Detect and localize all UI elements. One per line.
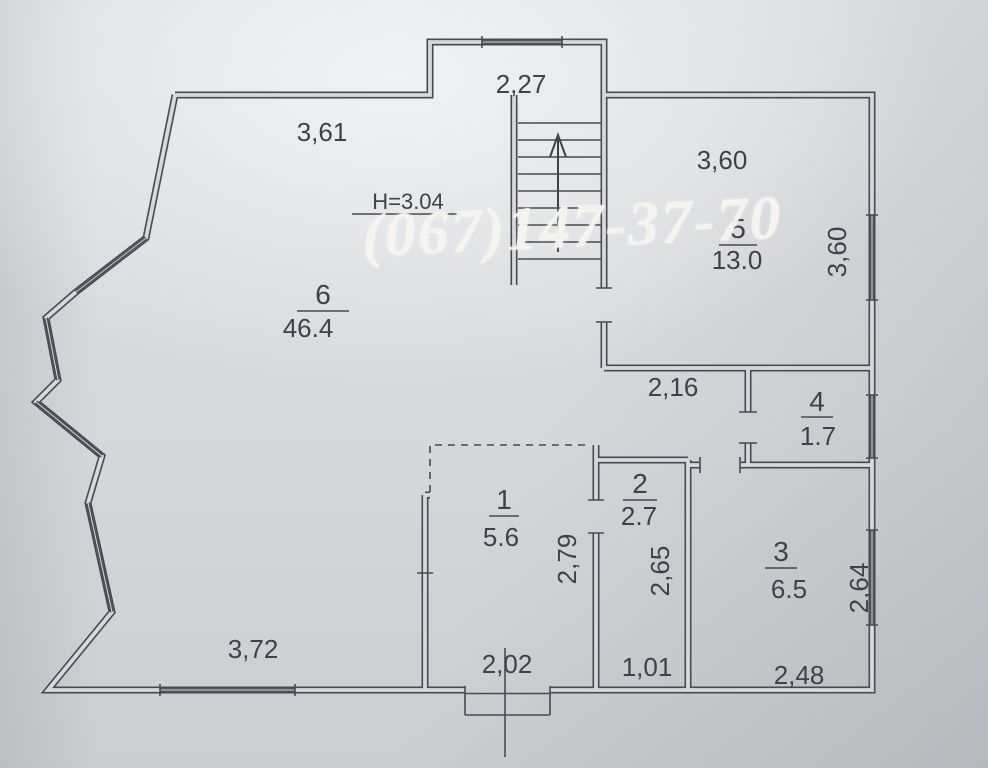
dim-room2-width: 1,01 bbox=[622, 652, 673, 682]
walls bbox=[36, 42, 872, 690]
dim-room1-depth: 2,79 bbox=[552, 534, 582, 585]
room-6-number: 6 bbox=[315, 279, 331, 310]
room-4-area: 1.7 bbox=[800, 421, 836, 451]
room-2-area: 2.7 bbox=[621, 501, 657, 531]
dim-room5-depth: 3,60 bbox=[822, 227, 852, 278]
dim-room3-depth: 2,64 bbox=[844, 563, 874, 614]
floor-plan-drawing: 2,27 3,61 H=3.04 3,60 3,60 2,16 2,79 2,6… bbox=[0, 0, 988, 768]
stair-treads bbox=[518, 123, 601, 259]
room-5-area: 13.0 bbox=[712, 245, 763, 275]
dim-room5-width: 3,60 bbox=[697, 145, 748, 175]
door-opening-marks bbox=[417, 288, 757, 573]
room-2-number: 2 bbox=[632, 468, 648, 499]
dim-bottom-wall: 3,72 bbox=[228, 634, 279, 664]
room-5-number: 5 bbox=[730, 213, 746, 244]
room-3-area: 6.5 bbox=[771, 574, 807, 604]
room-3-number: 3 bbox=[773, 536, 789, 567]
staircase bbox=[518, 123, 601, 259]
floorplan-photo: 2,27 3,61 H=3.04 3,60 3,60 2,16 2,79 2,6… bbox=[0, 0, 988, 768]
dim-hall-wall: 2,16 bbox=[648, 372, 699, 402]
room-4-number: 4 bbox=[809, 386, 825, 417]
dim-top-wall: 3,61 bbox=[297, 117, 348, 147]
dim-room2-depth: 2,65 bbox=[645, 546, 675, 597]
stairs-up-arrow-icon bbox=[550, 135, 566, 252]
room-6-area: 46.4 bbox=[283, 313, 334, 343]
dim-top-notch: 2,27 bbox=[496, 69, 547, 99]
dim-room3-width: 2,48 bbox=[774, 660, 825, 690]
room-1-number: 1 bbox=[496, 484, 512, 515]
dim-room1-width: 2,02 bbox=[482, 649, 533, 679]
room-1-area: 5.6 bbox=[483, 522, 519, 552]
ceiling-height-note: H=3.04 bbox=[372, 189, 444, 214]
